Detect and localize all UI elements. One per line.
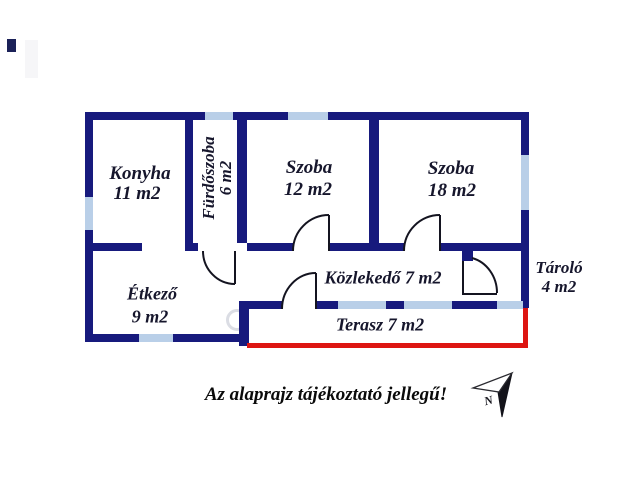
wall-interior-szoba12-left	[247, 243, 293, 251]
door-arc-szoba18	[404, 215, 440, 251]
room-label-furdoszoba: Fürdőszoba 6 m2	[200, 136, 234, 219]
wall-interior-szoba12-szoba18	[329, 243, 404, 251]
door-arc-szoba12	[293, 215, 329, 251]
wall-interior-furdoszoba-left-stub	[185, 243, 198, 251]
window-left-konyha	[85, 197, 93, 230]
wall-exterior-right	[521, 112, 529, 308]
floorplan-canvas: Konyha 11 m2 Fürdőszoba 6 m2 Szoba 12 m2…	[0, 0, 622, 480]
room-label-szoba12-area: 12 m2	[284, 180, 332, 200]
window-terasz-1	[338, 301, 386, 309]
room-label-tarolo-name: Tároló	[535, 259, 582, 277]
wall-interior-szoba18-right	[440, 243, 529, 251]
terasz-outline-bottom	[247, 343, 528, 348]
wall-kozlekedo-bottom-4	[452, 301, 497, 309]
room-label-szoba12-name: Szoba	[286, 158, 332, 178]
window-bottom-etkezo	[139, 334, 173, 342]
door-tarolo	[463, 258, 497, 294]
door-terasz	[282, 273, 316, 309]
wall-kozlekedo-bottom-2	[316, 301, 338, 309]
door-szoba12	[293, 215, 329, 251]
wall-stub-tarolo-door	[462, 251, 473, 261]
room-label-furdoszoba-name: Fürdőszoba	[200, 136, 217, 219]
door-arc-furdoszoba	[203, 251, 235, 284]
door-arc-tarolo	[472, 258, 497, 293]
wall-furdoszoba-right	[237, 120, 247, 243]
window-terasz-2	[404, 301, 452, 309]
door-leaf-tarolo	[463, 261, 497, 294]
wall-szoba-divider	[369, 120, 379, 243]
room-label-konyha-name: Konyha	[109, 164, 170, 184]
disclaimer-text: Az alaprajz tájékoztató jellegű!	[205, 384, 447, 406]
window-top-furdoszoba	[205, 112, 233, 120]
room-label-furdoszoba-area: 6 m2	[217, 136, 234, 219]
wall-kozlekedo-bottom-1	[239, 301, 282, 309]
wall-kozlekedo-bottom-3	[386, 301, 404, 309]
door-furdoszoba	[203, 251, 235, 284]
room-label-konyha-area: 11 m2	[114, 184, 161, 204]
window-right-szoba18	[521, 155, 529, 210]
door-arc-terasz	[282, 273, 316, 309]
north-arrow-label: N	[482, 392, 496, 408]
room-label-szoba18-area: 18 m2	[428, 181, 476, 201]
north-arrow-icon: N	[473, 373, 512, 417]
wall-furdoszoba-left	[185, 120, 193, 243]
north-arrow-wing	[473, 373, 512, 392]
window-terasz-3	[497, 301, 523, 309]
room-label-etkezo-name: Étkező	[127, 285, 177, 304]
north-arrow-body	[498, 373, 512, 417]
window-top-szoba12	[288, 112, 328, 120]
door-szoba18	[404, 215, 440, 251]
terasz-outline-right	[523, 308, 528, 348]
room-label-szoba18-name: Szoba	[428, 159, 474, 179]
wall-interior-konyha-etkezo	[93, 243, 142, 251]
watermark-square	[7, 39, 16, 52]
room-label-terasz: Terasz 7 m2	[336, 316, 424, 335]
room-label-kozlekedo: Közlekedő 7 m2	[325, 269, 442, 288]
room-label-etkezo-area: 9 m2	[132, 308, 169, 327]
room-label-tarolo-area: 4 m2	[542, 278, 576, 296]
watermark-shape	[25, 40, 38, 78]
